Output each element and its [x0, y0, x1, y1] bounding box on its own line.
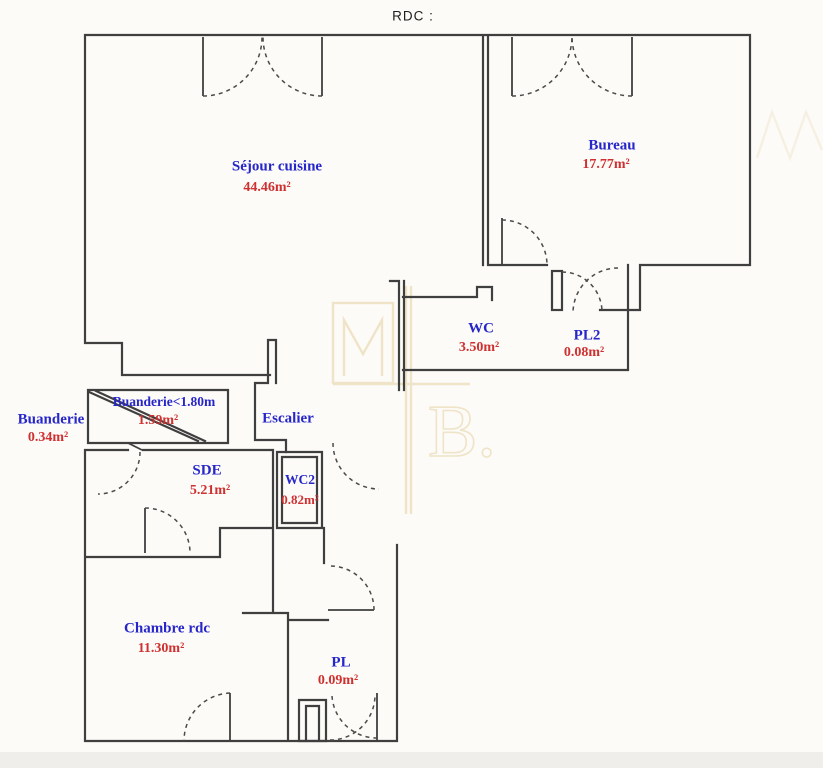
watermark-frame — [333, 303, 393, 383]
entry-door-frame — [299, 700, 326, 741]
scan-edge-band — [0, 752, 823, 768]
label-pl-name: PL — [331, 655, 350, 672]
label-sde-name: SDE — [192, 463, 221, 480]
door-arc-hall — [330, 566, 374, 610]
door-arc-bureau-left — [512, 37, 572, 96]
door-arc-entry-a — [330, 695, 375, 740]
floor-plan: B. — [0, 0, 823, 768]
door-arc-sejour-left — [203, 37, 262, 96]
label-pl2-name: PL2 — [574, 328, 601, 345]
label-buanderie-int-area: 1.59m² — [138, 413, 178, 429]
door-arc-entry-b — [332, 696, 377, 738]
door-arc-pl2-a — [562, 272, 602, 312]
label-sejour-area: 44.46m² — [243, 180, 290, 196]
label-buanderie-ext-area: 0.34m² — [28, 430, 68, 446]
door-arc-pl2-b — [573, 268, 618, 313]
label-chambre-name: Chambre rdc — [124, 621, 210, 638]
door-arc-sde — [98, 452, 140, 494]
label-sde-area: 5.21m² — [190, 483, 230, 499]
label-wc2-area: 0.82m² — [281, 492, 318, 508]
label-pl-area: 0.09m² — [318, 673, 358, 689]
label-buanderie-ext-name: Buanderie — [18, 412, 85, 429]
watermark: B. — [333, 112, 822, 514]
watermark-corner-fragment — [757, 112, 822, 158]
label-wc-area: 3.50m² — [459, 340, 499, 356]
pl2-door-panel — [552, 271, 562, 310]
label-escalier-name: Escalier — [262, 411, 314, 428]
page-title: RDC : — [392, 9, 434, 24]
wc2-box-walls — [277, 452, 322, 528]
label-bureau-area: 17.77m² — [582, 157, 629, 173]
door-arc-bureau-inner — [502, 220, 547, 265]
floor-plan-drawing: B. — [0, 0, 823, 768]
label-sejour-name: Séjour cuisine — [232, 159, 322, 176]
door-arc-sejour-right — [263, 37, 322, 96]
door-arc-bureau-right — [572, 37, 632, 96]
label-chambre-area: 11.30m² — [138, 641, 185, 657]
label-wc-name: WC — [468, 321, 494, 338]
label-bureau-name: Bureau — [588, 138, 635, 155]
door-arc-corridor — [333, 443, 379, 489]
label-wc2-name: WC2 — [285, 472, 315, 488]
door-arc-chambre-sde — [145, 508, 190, 553]
watermark-bar — [406, 286, 411, 514]
label-pl2-area: 0.08m² — [564, 345, 604, 361]
watermark-m — [344, 320, 382, 376]
watermark-b: B. — [428, 391, 496, 473]
label-buanderie-int-name: Buanderie<1.80m — [113, 394, 216, 410]
door-arc-chambre — [184, 693, 230, 741]
